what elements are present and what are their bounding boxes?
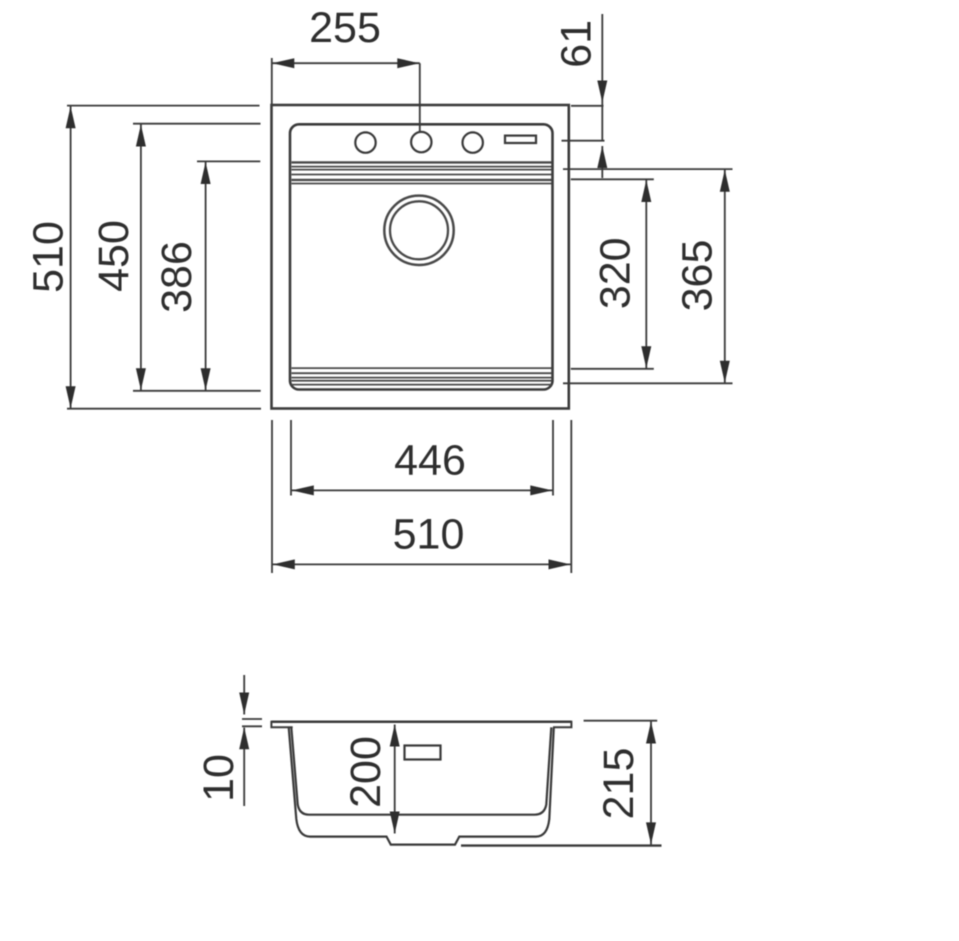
svg-text:365: 365 bbox=[673, 240, 721, 312]
svg-text:510: 510 bbox=[25, 221, 73, 293]
svg-text:510: 510 bbox=[393, 511, 465, 559]
svg-text:450: 450 bbox=[90, 220, 138, 292]
svg-text:61: 61 bbox=[553, 20, 601, 68]
svg-text:10: 10 bbox=[195, 754, 243, 802]
svg-text:255: 255 bbox=[309, 4, 381, 52]
svg-text:386: 386 bbox=[153, 241, 201, 313]
svg-text:215: 215 bbox=[595, 748, 643, 820]
svg-text:320: 320 bbox=[592, 237, 640, 309]
svg-text:446: 446 bbox=[394, 437, 466, 485]
svg-text:200: 200 bbox=[342, 736, 390, 808]
